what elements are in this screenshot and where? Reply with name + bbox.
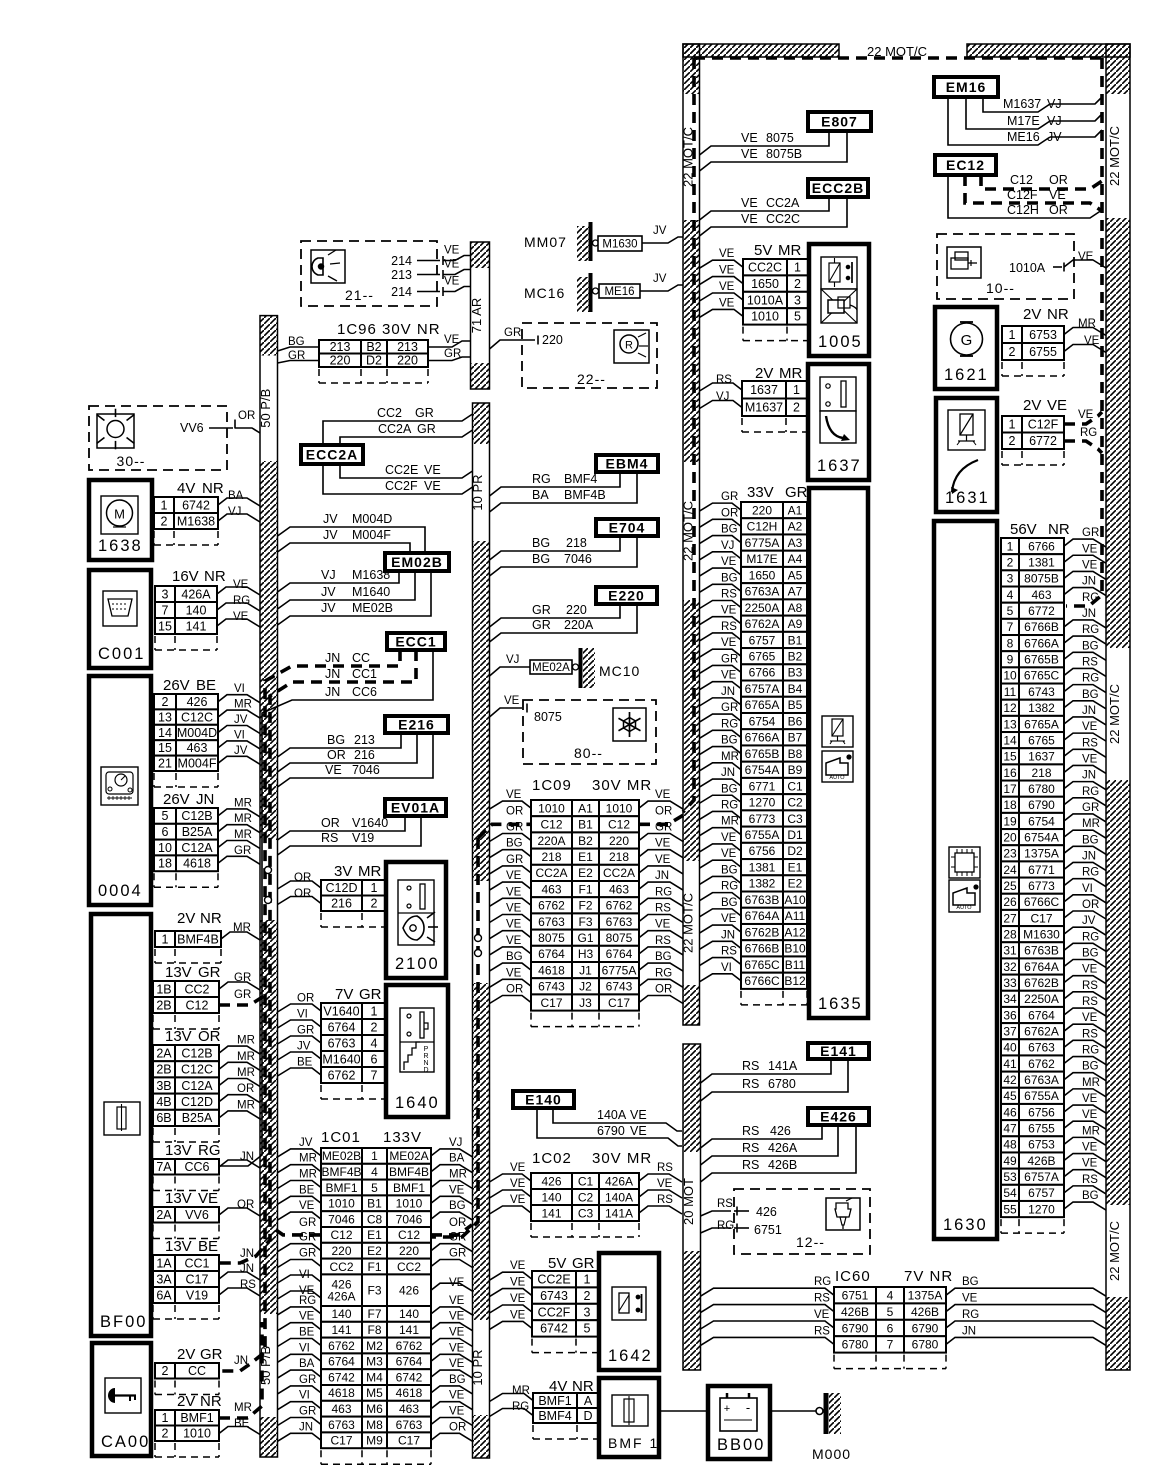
svg-text:5: 5: [1007, 604, 1014, 618]
svg-text:10: 10: [158, 841, 172, 855]
svg-text:V19: V19: [352, 831, 374, 845]
svg-text:6762A: 6762A: [745, 617, 780, 631]
svg-text:1381: 1381: [1028, 556, 1055, 570]
svg-text:JN: JN: [325, 685, 340, 699]
svg-text:1: 1: [162, 932, 169, 946]
svg-text:VE: VE: [504, 695, 520, 707]
svg-text:MR: MR: [237, 1067, 255, 1079]
svg-text:6762B: 6762B: [745, 925, 780, 939]
svg-text:1010: 1010: [751, 310, 779, 324]
svg-text:GR: GR: [198, 964, 221, 981]
svg-text:1010: 1010: [606, 801, 633, 815]
svg-text:1A: 1A: [156, 1256, 172, 1270]
svg-text:A10: A10: [784, 893, 806, 907]
svg-text:141A: 141A: [605, 1206, 633, 1220]
svg-text:42: 42: [1003, 1073, 1017, 1087]
svg-text:CC6: CC6: [352, 685, 377, 699]
svg-text:6763: 6763: [328, 1418, 355, 1432]
svg-text:4: 4: [887, 1289, 894, 1303]
svg-text:6B: 6B: [156, 1111, 171, 1125]
svg-text:6764A: 6764A: [745, 909, 780, 923]
svg-text:JN: JN: [1082, 850, 1096, 862]
svg-text:GR: GR: [1082, 527, 1099, 539]
svg-text:EC12: EC12: [946, 157, 985, 173]
svg-text:6743: 6743: [1028, 685, 1055, 699]
svg-text:JN: JN: [721, 767, 735, 779]
svg-text:4618: 4618: [538, 963, 565, 977]
svg-text:C12: C12: [398, 1228, 420, 1242]
svg-text:133V: 133V: [383, 1129, 422, 1146]
svg-text:VE: VE: [506, 870, 522, 882]
svg-text:6766: 6766: [1028, 539, 1055, 553]
svg-text:1: 1: [371, 1149, 378, 1163]
svg-text:6766B: 6766B: [745, 942, 780, 956]
svg-text:80--: 80--: [574, 745, 603, 761]
svg-text:CC1: CC1: [352, 667, 377, 681]
svg-text:EBM4: EBM4: [606, 455, 649, 471]
svg-text:CC2C: CC2C: [748, 261, 782, 275]
svg-text:1637: 1637: [750, 383, 778, 397]
svg-text:JN: JN: [721, 929, 735, 941]
svg-text:14: 14: [158, 726, 172, 740]
svg-text:BMF4B: BMF4B: [564, 488, 606, 502]
svg-text:53: 53: [1003, 1170, 1017, 1184]
svg-text:1650: 1650: [749, 568, 776, 582]
svg-text:1375A: 1375A: [908, 1289, 943, 1303]
svg-text:RS: RS: [742, 1158, 759, 1172]
svg-text:CC2F: CC2F: [538, 1305, 571, 1319]
svg-text:RG: RG: [721, 718, 738, 730]
svg-text:6763: 6763: [538, 915, 565, 929]
svg-text:1: 1: [794, 261, 801, 275]
svg-text:8075: 8075: [534, 710, 562, 724]
svg-text:RG: RG: [1082, 931, 1099, 943]
svg-text:BE: BE: [297, 1057, 313, 1069]
svg-text:A1: A1: [788, 503, 803, 517]
svg-text:CC2A: CC2A: [603, 866, 635, 880]
svg-text:M000: M000: [812, 1446, 851, 1462]
svg-text:B2: B2: [788, 649, 803, 663]
svg-text:6756: 6756: [1028, 1105, 1055, 1119]
svg-text:1: 1: [162, 1411, 169, 1425]
svg-text:RG: RG: [299, 1295, 316, 1307]
svg-text:CC2E: CC2E: [537, 1273, 570, 1287]
svg-text:JV: JV: [297, 1041, 311, 1053]
svg-text:VE: VE: [741, 212, 758, 226]
svg-text:VJ: VJ: [449, 1137, 462, 1149]
svg-text:463: 463: [331, 1402, 351, 1416]
svg-text:4: 4: [1007, 588, 1014, 602]
svg-text:M004D: M004D: [177, 726, 217, 740]
svg-text:R: R: [625, 340, 633, 352]
svg-text:2: 2: [162, 1427, 169, 1441]
svg-text:V1640: V1640: [352, 816, 388, 830]
svg-text:218: 218: [541, 850, 561, 864]
svg-text:OR: OR: [655, 984, 672, 996]
svg-text:463: 463: [187, 741, 208, 755]
svg-text:BG: BG: [1082, 1190, 1099, 1202]
svg-text:MR: MR: [234, 829, 252, 841]
svg-text:BE: BE: [299, 1327, 315, 1339]
svg-text:30V MR: 30V MR: [592, 777, 652, 794]
svg-text:VE: VE: [1049, 188, 1066, 202]
svg-text:MR: MR: [234, 813, 252, 825]
svg-text:141A: 141A: [768, 1059, 798, 1073]
svg-text:A12: A12: [784, 925, 806, 939]
svg-text:55: 55: [1003, 1202, 1017, 1216]
svg-text:6: 6: [887, 1321, 894, 1335]
svg-text:6754A: 6754A: [745, 763, 780, 777]
svg-text:6742: 6742: [328, 1370, 355, 1384]
svg-text:MR: MR: [449, 1169, 467, 1181]
svg-text:BG: BG: [1082, 689, 1099, 701]
svg-text:RS: RS: [321, 831, 338, 845]
svg-text:6764: 6764: [606, 947, 633, 961]
svg-text:1C09: 1C09: [532, 777, 572, 794]
svg-text:MR: MR: [237, 1035, 255, 1047]
svg-text:17: 17: [1003, 782, 1017, 796]
svg-text:1010: 1010: [538, 801, 565, 815]
svg-text:218: 218: [566, 536, 587, 550]
svg-text:6763B: 6763B: [1024, 944, 1059, 958]
svg-text:VE: VE: [814, 1309, 830, 1321]
svg-text:6762: 6762: [606, 899, 633, 913]
svg-text:VJ: VJ: [321, 568, 336, 582]
svg-text:RS: RS: [1082, 980, 1098, 992]
svg-text:BG: BG: [721, 864, 738, 876]
svg-text:4618: 4618: [396, 1386, 423, 1400]
svg-text:2A: 2A: [156, 1046, 172, 1060]
svg-text:E216: E216: [398, 716, 435, 732]
svg-text:GR: GR: [572, 1255, 595, 1272]
svg-text:A11: A11: [785, 909, 806, 923]
svg-text:6753: 6753: [1029, 328, 1057, 342]
svg-text:141: 141: [186, 619, 207, 633]
svg-text:6A: 6A: [156, 1288, 172, 1302]
svg-text:M1630: M1630: [1023, 927, 1060, 941]
svg-text:1: 1: [371, 881, 378, 895]
svg-text:6743: 6743: [538, 980, 565, 994]
svg-text:C12H: C12H: [1007, 203, 1039, 217]
svg-text:VE: VE: [299, 1200, 315, 1212]
svg-text:426B: 426B: [911, 1305, 939, 1319]
svg-text:3B: 3B: [156, 1079, 171, 1093]
svg-text:VE: VE: [1082, 559, 1098, 571]
svg-text:F1: F1: [578, 882, 592, 896]
svg-text:6766B: 6766B: [1024, 620, 1059, 634]
svg-text:NR: NR: [1047, 306, 1069, 323]
svg-text:RS: RS: [814, 1325, 830, 1337]
svg-text:VE: VE: [657, 1178, 673, 1190]
svg-text:426A: 426A: [181, 587, 211, 601]
svg-text:D2: D2: [787, 844, 803, 858]
svg-text:30V MR: 30V MR: [592, 1150, 652, 1167]
svg-text:6743: 6743: [606, 980, 633, 994]
svg-text:E2: E2: [578, 866, 593, 880]
svg-text:BG: BG: [655, 951, 672, 963]
svg-text:2: 2: [794, 277, 801, 291]
svg-text:2B: 2B: [156, 1063, 171, 1077]
svg-text:VI: VI: [299, 1390, 310, 1402]
svg-text:MR: MR: [1082, 1125, 1100, 1137]
svg-text:J3: J3: [579, 996, 592, 1010]
svg-text:G: G: [961, 332, 973, 349]
svg-text:MC10: MC10: [599, 663, 640, 679]
svg-text:C001: C001: [98, 645, 145, 663]
svg-text:ME02A: ME02A: [532, 662, 570, 674]
svg-text:7V: 7V: [335, 986, 353, 1003]
svg-text:28: 28: [1003, 927, 1017, 941]
svg-text:2250A: 2250A: [1024, 992, 1059, 1006]
svg-text:6790: 6790: [912, 1321, 939, 1335]
svg-text:CC2: CC2: [377, 406, 402, 420]
svg-text:OR: OR: [321, 816, 340, 830]
svg-text:EM16: EM16: [946, 79, 987, 95]
svg-text:J1: J1: [579, 963, 592, 977]
svg-text:216: 216: [331, 897, 352, 911]
svg-text:GR: GR: [299, 1217, 316, 1229]
svg-text:ME02B: ME02B: [322, 1149, 361, 1163]
svg-text:6766A: 6766A: [745, 731, 780, 745]
svg-text:4: 4: [371, 1165, 378, 1179]
svg-text:GR: GR: [504, 327, 521, 339]
svg-text:VE: VE: [721, 670, 737, 682]
svg-text:M9: M9: [366, 1434, 383, 1448]
svg-text:VE: VE: [198, 1190, 218, 1207]
svg-text:41: 41: [1003, 1057, 1017, 1071]
svg-text:B7: B7: [788, 731, 803, 745]
svg-text:OR: OR: [1049, 203, 1068, 217]
svg-text:RG: RG: [962, 1309, 979, 1321]
svg-text:6763: 6763: [606, 915, 633, 929]
svg-text:E1: E1: [367, 1228, 382, 1242]
svg-text:4618: 4618: [328, 1386, 355, 1400]
svg-text:E140: E140: [525, 1091, 562, 1107]
svg-text:MR: MR: [299, 1169, 317, 1181]
svg-text:426A: 426A: [605, 1174, 633, 1188]
svg-text:8075B: 8075B: [1024, 572, 1059, 586]
svg-text:6780: 6780: [842, 1338, 869, 1352]
svg-text:6766A: 6766A: [1024, 636, 1059, 650]
svg-text:C17: C17: [398, 1434, 420, 1448]
svg-text:B1: B1: [788, 633, 803, 647]
svg-text:VE: VE: [721, 637, 737, 649]
svg-text:6790: 6790: [597, 1124, 625, 1138]
svg-text:BE: BE: [196, 677, 216, 694]
svg-text:6757A: 6757A: [745, 682, 780, 696]
svg-text:M3: M3: [366, 1355, 383, 1369]
svg-text:30V NR: 30V NR: [382, 321, 441, 338]
svg-text:220: 220: [566, 603, 587, 617]
svg-text:C12F: C12F: [1007, 188, 1038, 202]
svg-text:C3: C3: [787, 812, 803, 826]
svg-text:OR: OR: [327, 748, 346, 762]
svg-text:140: 140: [186, 603, 207, 617]
svg-text:CC6: CC6: [184, 1160, 209, 1174]
svg-text:426: 426: [541, 1174, 561, 1188]
svg-text:3: 3: [794, 293, 801, 307]
svg-text:426A: 426A: [327, 1290, 355, 1304]
svg-text:463: 463: [541, 882, 561, 896]
svg-text:C17: C17: [608, 996, 630, 1010]
svg-text:MR: MR: [237, 1099, 255, 1111]
svg-text:BMF4B: BMF4B: [177, 932, 219, 946]
svg-text:VE: VE: [721, 556, 737, 568]
svg-text:1005: 1005: [818, 333, 863, 351]
svg-text:CC2: CC2: [329, 1260, 353, 1274]
svg-text:C17: C17: [330, 1434, 352, 1448]
svg-text:M5: M5: [366, 1386, 383, 1400]
svg-text:7A: 7A: [156, 1160, 172, 1174]
svg-text:16: 16: [1003, 766, 1017, 780]
svg-text:RG: RG: [532, 472, 551, 486]
svg-text:VE: VE: [325, 763, 342, 777]
svg-text:D2: D2: [366, 354, 382, 368]
svg-text:6771: 6771: [749, 779, 776, 793]
svg-text:6755: 6755: [1029, 345, 1057, 359]
svg-text:M: M: [114, 507, 125, 522]
svg-text:RS: RS: [1082, 656, 1098, 668]
svg-text:CC2F: CC2F: [385, 479, 418, 493]
svg-text:GR: GR: [299, 1406, 316, 1418]
svg-text:C12H: C12H: [747, 520, 778, 534]
svg-text:7V NR: 7V NR: [904, 1268, 953, 1285]
svg-text:30--: 30--: [117, 453, 146, 469]
svg-text:7046: 7046: [564, 552, 592, 566]
svg-text:C12D: C12D: [326, 881, 358, 895]
svg-text:ME16: ME16: [1007, 130, 1040, 144]
svg-text:1010: 1010: [183, 1427, 211, 1441]
svg-text:10: 10: [1003, 669, 1017, 683]
svg-text:6762A: 6762A: [1024, 1024, 1059, 1038]
svg-text:VE: VE: [962, 1293, 978, 1305]
svg-text:JN: JN: [240, 1151, 254, 1163]
svg-text:C3: C3: [578, 1206, 594, 1220]
svg-text:13: 13: [1003, 717, 1017, 731]
svg-text:JV: JV: [323, 512, 338, 526]
svg-text:VE: VE: [655, 789, 671, 801]
svg-text:B1: B1: [367, 1197, 382, 1211]
svg-text:NR: NR: [204, 568, 226, 585]
svg-text:JN: JN: [299, 1421, 313, 1433]
svg-text:RG: RG: [655, 886, 672, 898]
svg-text:1375A: 1375A: [1024, 847, 1059, 861]
svg-text:NR: NR: [200, 910, 222, 927]
svg-text:+: +: [724, 1403, 730, 1415]
svg-text:RS: RS: [1082, 1028, 1098, 1040]
svg-text:1381: 1381: [749, 860, 776, 874]
svg-text:RS: RS: [655, 903, 671, 915]
svg-text:216: 216: [354, 748, 375, 762]
svg-text:VE: VE: [721, 832, 737, 844]
svg-text:AUTO: AUTO: [829, 775, 845, 781]
svg-text:3: 3: [1007, 572, 1014, 586]
svg-text:5: 5: [887, 1305, 894, 1319]
svg-text:GR: GR: [234, 989, 251, 1001]
svg-text:32: 32: [1003, 960, 1017, 974]
svg-text:M17E: M17E: [1007, 114, 1040, 128]
svg-text:VE: VE: [1082, 721, 1098, 733]
svg-text:E2: E2: [367, 1244, 382, 1258]
svg-text:A3: A3: [788, 536, 803, 550]
svg-text:2: 2: [371, 897, 378, 911]
svg-text:OR: OR: [237, 1083, 254, 1095]
svg-text:23: 23: [1003, 847, 1017, 861]
svg-text:RG: RG: [1080, 427, 1097, 439]
svg-text:ME02A: ME02A: [389, 1149, 428, 1163]
svg-text:VE: VE: [510, 1162, 526, 1174]
svg-text:MR: MR: [299, 1153, 317, 1165]
svg-text:220: 220: [752, 503, 772, 517]
svg-text:6764: 6764: [538, 947, 565, 961]
svg-text:JN: JN: [325, 651, 340, 665]
svg-text:2V: 2V: [177, 1346, 195, 1363]
svg-text:BG: BG: [327, 733, 345, 747]
svg-text:VE: VE: [510, 1194, 526, 1206]
svg-text:13V: 13V: [165, 964, 192, 981]
svg-text:C12: C12: [540, 818, 562, 832]
svg-text:VV6: VV6: [185, 1208, 209, 1222]
svg-text:6756: 6756: [749, 844, 776, 858]
svg-text:F3: F3: [578, 915, 592, 929]
svg-text:RG: RG: [233, 595, 250, 607]
svg-text:6762: 6762: [538, 899, 565, 913]
svg-text:141: 141: [399, 1323, 419, 1337]
svg-text:3A: 3A: [156, 1272, 172, 1286]
svg-text:RS: RS: [742, 1077, 759, 1091]
svg-text:6763: 6763: [328, 1036, 356, 1050]
svg-text:2V: 2V: [755, 365, 773, 382]
svg-text:C12F: C12F: [1028, 418, 1059, 432]
svg-text:1382: 1382: [1028, 701, 1055, 715]
svg-text:C12C: C12C: [181, 1063, 213, 1077]
svg-text:A2: A2: [788, 520, 803, 534]
svg-text:22--: 22--: [577, 371, 606, 387]
svg-text:OR: OR: [294, 872, 311, 884]
svg-text:22 MOT/C: 22 MOT/C: [1107, 126, 1122, 186]
svg-text:VI: VI: [1082, 883, 1093, 895]
svg-text:6773: 6773: [1028, 879, 1055, 893]
svg-text:1: 1: [793, 383, 800, 397]
svg-text:NR: NR: [202, 480, 224, 497]
svg-text:VE: VE: [1082, 753, 1098, 765]
svg-text:OR: OR: [1082, 899, 1099, 911]
svg-text:6757: 6757: [1028, 1186, 1055, 1200]
svg-text:BG: BG: [449, 1374, 466, 1386]
svg-text:3: 3: [162, 587, 169, 601]
svg-text:6762: 6762: [328, 1068, 356, 1082]
svg-text:VJ: VJ: [506, 654, 519, 666]
svg-text:OR: OR: [506, 984, 523, 996]
svg-text:VI: VI: [234, 683, 245, 695]
svg-text:16V: 16V: [172, 568, 199, 585]
svg-text:GR: GR: [721, 653, 738, 665]
svg-text:VE: VE: [449, 1342, 465, 1354]
svg-text:22 MOT/C: 22 MOT/C: [1107, 684, 1122, 744]
svg-text:RS: RS: [721, 621, 737, 633]
svg-text:VE: VE: [655, 838, 671, 850]
svg-text:14: 14: [1003, 733, 1017, 747]
svg-text:GR: GR: [299, 1248, 316, 1260]
svg-text:6763: 6763: [1028, 1041, 1055, 1055]
svg-text:MR: MR: [234, 1402, 252, 1414]
svg-text:JV: JV: [321, 601, 336, 615]
svg-text:1: 1: [1009, 328, 1016, 342]
svg-text:D: D: [583, 1409, 592, 1423]
svg-text:CC2A: CC2A: [378, 422, 412, 436]
svg-text:VE: VE: [449, 1358, 465, 1370]
svg-text:RG: RG: [1082, 1045, 1099, 1057]
